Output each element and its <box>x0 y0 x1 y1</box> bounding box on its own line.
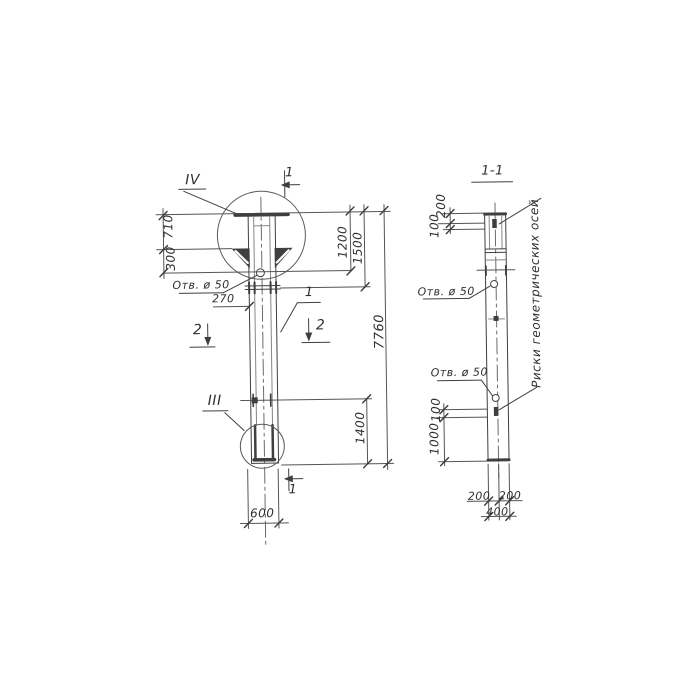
dim-100-top: 100 <box>427 214 441 239</box>
hole-label-section-upper: Отв. ø 50 <box>417 285 474 299</box>
bracket-left <box>232 248 250 268</box>
section-mark-1-top: 1 <box>285 165 294 180</box>
axis-line-left-view <box>261 197 266 546</box>
dim-300: 300 <box>164 246 178 271</box>
dim-1400: 1400 <box>353 411 367 444</box>
dim-600: 600 <box>250 506 275 520</box>
axis-mark-top <box>492 219 497 228</box>
dim-200-width-left: 200 <box>468 490 491 503</box>
dim-200-width-right: 200 <box>499 489 522 502</box>
hole-section-upper <box>491 280 498 287</box>
dim-7760: 7760 <box>372 314 387 349</box>
hole-section-lower <box>492 394 499 401</box>
detail-marker-iv: IV <box>185 172 200 188</box>
dim-1200: 1200 <box>335 226 349 259</box>
part-callout-1: 1 <box>305 285 314 300</box>
dim-710: 710 <box>161 214 175 239</box>
drawing-linework <box>0 0 700 700</box>
detail-marker-iii: III <box>208 393 222 409</box>
bracket-right <box>275 248 293 268</box>
drawing-sheet: IV III 1 1 2 2 1 Отв. ø 50 710 300 270 1… <box>0 0 700 700</box>
section-mark-2-left: 2 <box>193 322 203 338</box>
dim-400: 400 <box>486 505 509 518</box>
hole-label-section-lower: Отв. ø 50 <box>431 366 488 380</box>
dim-1000: 1000 <box>427 422 441 455</box>
section-mark-1-bottom: 1 <box>288 482 297 497</box>
hole-left-view <box>256 269 264 277</box>
dim-1500: 1500 <box>350 232 364 265</box>
section-view-title: 1-1 <box>481 163 504 178</box>
drawing-canvas: IV III 1 1 2 2 1 Отв. ø 50 710 300 270 1… <box>0 0 700 700</box>
dim-270: 270 <box>212 292 235 305</box>
axis-mark-bottom <box>494 407 499 416</box>
axis-note: Риски геометрических осей <box>527 199 544 388</box>
hole-label-left: Отв. ø 50 <box>172 278 229 292</box>
top-plate <box>235 214 288 215</box>
section-mark-2-right: 2 <box>316 317 326 333</box>
axis-line-section-view <box>495 203 499 478</box>
dim-100-bottom: 100 <box>429 398 443 423</box>
